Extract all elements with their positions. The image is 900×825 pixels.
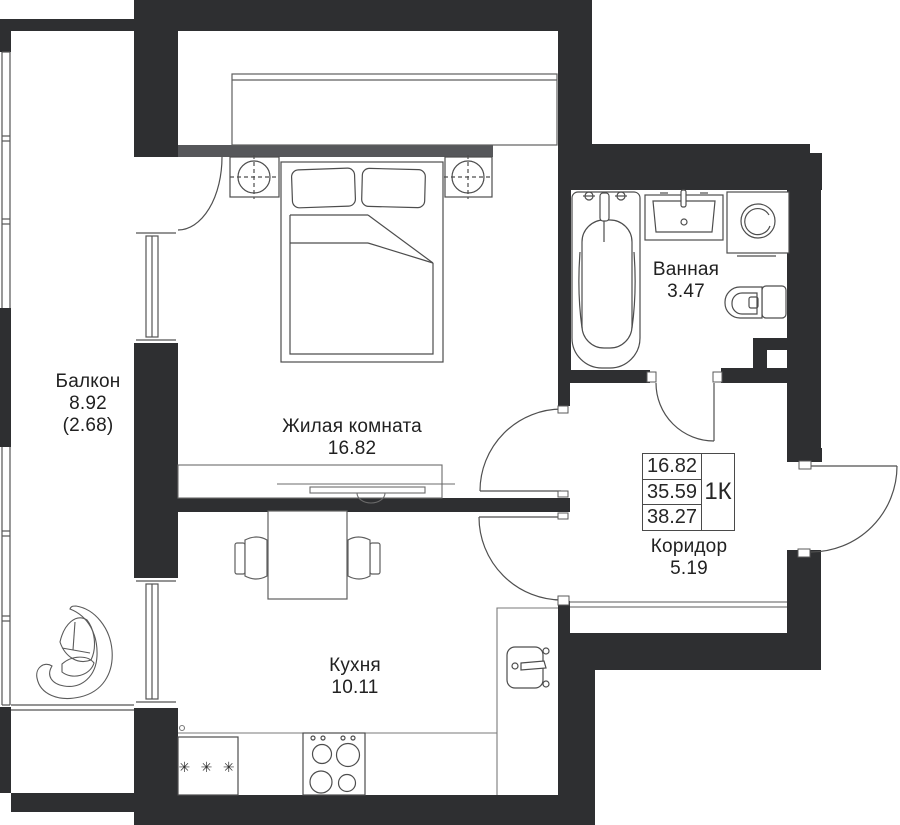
living-area: 16.82 [252, 438, 452, 460]
room-label-kitchen: Кухня 10.11 [305, 655, 405, 699]
wardrobe-sliding-door [178, 145, 493, 157]
entrance-door-arc [811, 466, 897, 552]
kitchen-area: 10.11 [305, 677, 405, 699]
bathroom-name: Ванная [636, 259, 736, 281]
washbasin-icon [645, 190, 723, 240]
fridge-icon: ✳ ✳ ✳ [178, 737, 238, 795]
room-label-living: Жилая комната 16.82 [252, 416, 452, 460]
area-summary-values: 16.82 35.59 38.27 [643, 454, 702, 530]
bathtub-icon [572, 192, 640, 368]
bathroom-door-arc [656, 383, 714, 441]
chair-right-icon [348, 537, 380, 579]
living-room-door-arc [480, 409, 562, 491]
floor-plan: ✳ ✳ ✳ [0, 0, 900, 825]
kitchen-door-arc [479, 517, 562, 600]
living-room-window [136, 233, 176, 340]
nightstand-left-icon [230, 155, 279, 199]
stove-icon [303, 733, 365, 795]
fridge-snowflakes: ✳ ✳ ✳ [178, 760, 237, 776]
bathroom-area: 3.47 [636, 281, 736, 303]
kitchen-name: Кухня [305, 655, 405, 677]
balcony-name: Балкон [28, 371, 148, 393]
hanging-chair-icon [37, 606, 112, 698]
unit-type-badge: 1К [702, 454, 734, 530]
summary-area-no-balcony: 35.59 [643, 479, 701, 506]
living-name: Жилая комната [252, 416, 452, 438]
kitchen-sink-icon [507, 647, 549, 688]
balcony-door-arc [178, 157, 222, 230]
room-label-balcony: Балкон 8.92 (2.68) [28, 371, 148, 437]
corridor-name: Коридор [639, 536, 739, 558]
tv-console-icon [178, 465, 455, 503]
summary-total-area: 38.27 [643, 505, 701, 530]
corridor-closet [570, 602, 787, 607]
kitchen-window [136, 581, 176, 702]
corridor-area: 5.19 [639, 558, 739, 580]
balcony-area: 8.92 [28, 393, 148, 415]
room-label-corridor: Коридор 5.19 [639, 536, 739, 580]
area-summary-box: 16.82 35.59 38.27 1К [642, 453, 735, 531]
dining-table-icon [268, 511, 347, 599]
chair-left-icon [235, 537, 267, 579]
room-label-bathroom: Ванная 3.47 [636, 259, 736, 303]
bed-icon [281, 162, 443, 362]
washing-machine-icon [727, 192, 789, 256]
balcony-area-reduced: (2.68) [28, 415, 148, 437]
nightstand-right-icon [444, 155, 492, 199]
summary-living-area: 16.82 [643, 454, 701, 479]
vent-shaft-niche [767, 350, 787, 368]
wardrobe-icon [232, 74, 557, 145]
